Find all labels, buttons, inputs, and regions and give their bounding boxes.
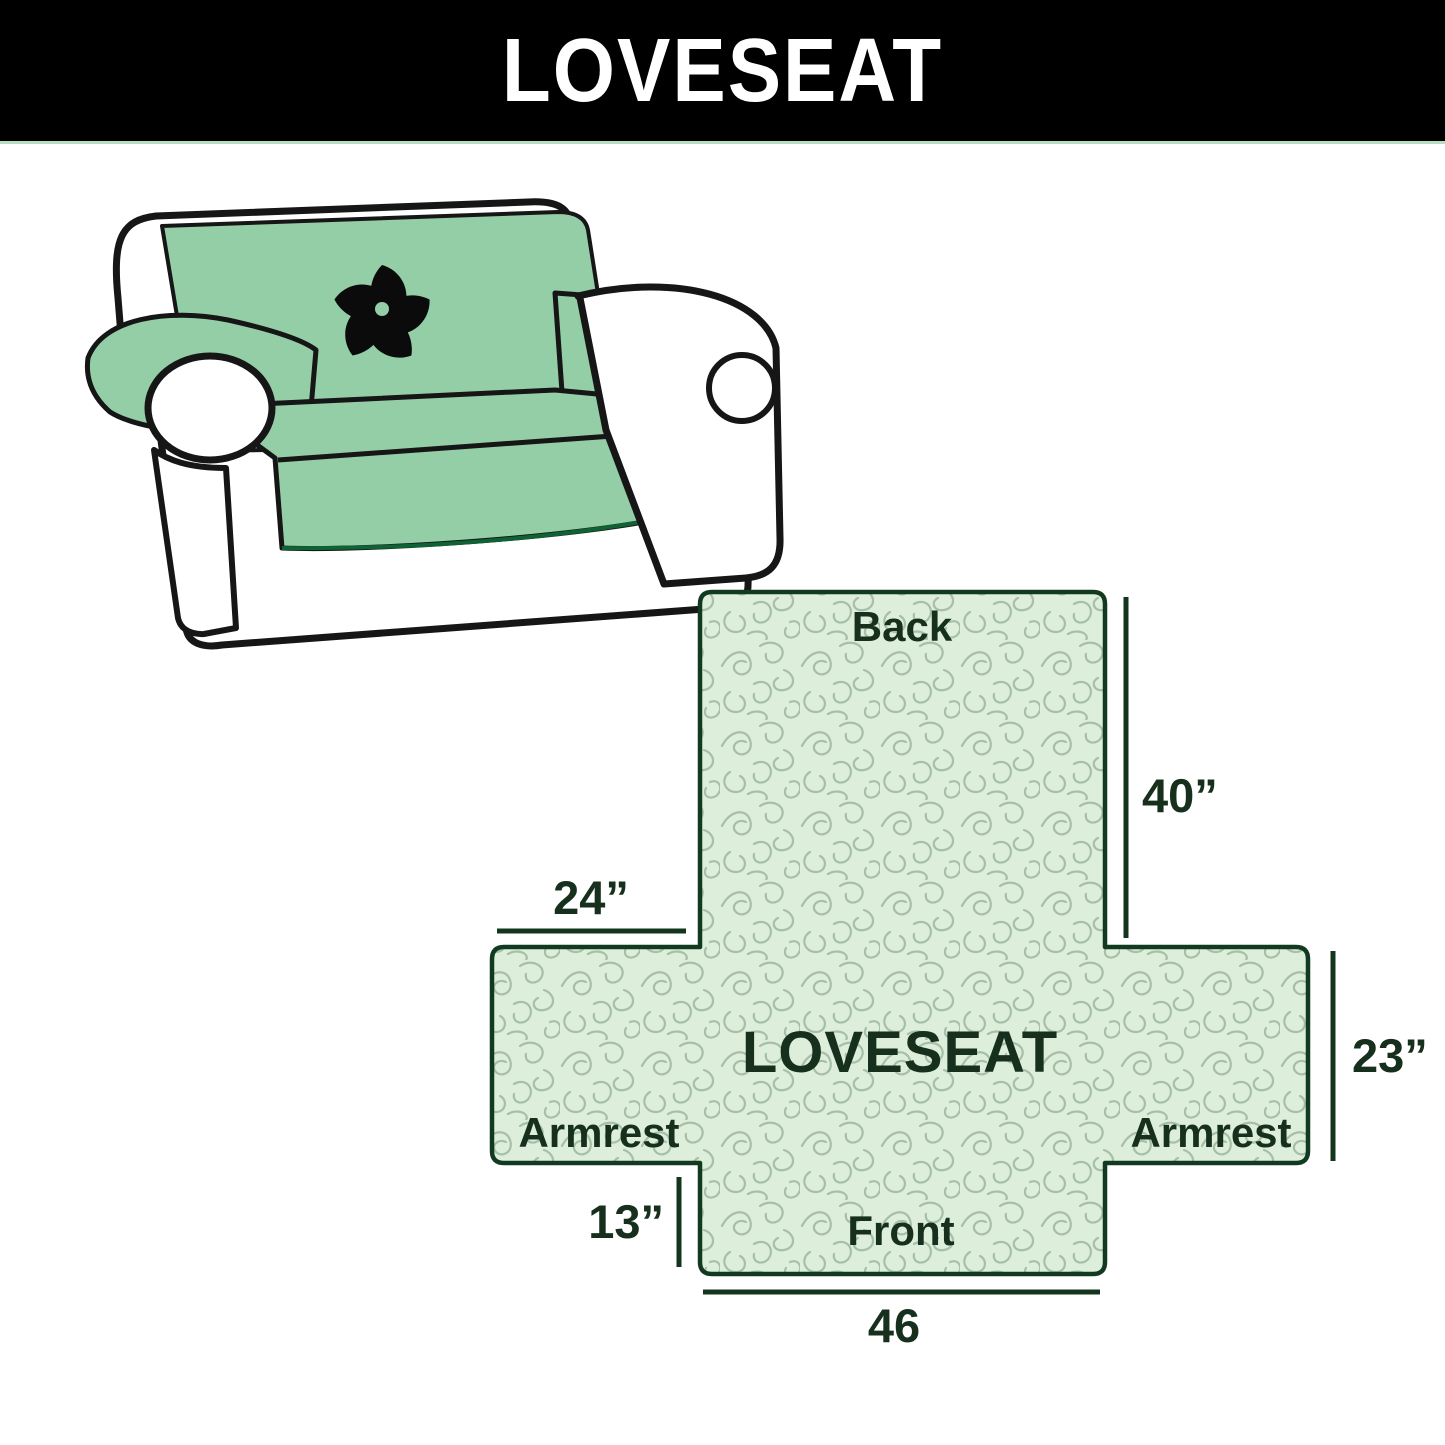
- cover-dimension-diagram: [0, 0, 1445, 1445]
- dimension-front-width: 46: [868, 1302, 920, 1349]
- dimension-armrest-width: 23”: [1352, 1032, 1428, 1079]
- dimension-armrest-length: 24”: [553, 874, 629, 921]
- diagram-label-back: Back: [852, 606, 952, 648]
- diagram-label-armrest-right: Armrest: [1130, 1112, 1291, 1154]
- diagram-label-armrest-left: Armrest: [518, 1112, 679, 1154]
- dimension-front-skirt: 13”: [588, 1198, 664, 1245]
- diagram-center-label: LOVESEAT: [742, 1024, 1058, 1082]
- diagram-label-front: Front: [847, 1210, 954, 1252]
- dimension-back-length: 40”: [1142, 772, 1218, 819]
- infographic-page: LOVESEAT: [0, 0, 1445, 1445]
